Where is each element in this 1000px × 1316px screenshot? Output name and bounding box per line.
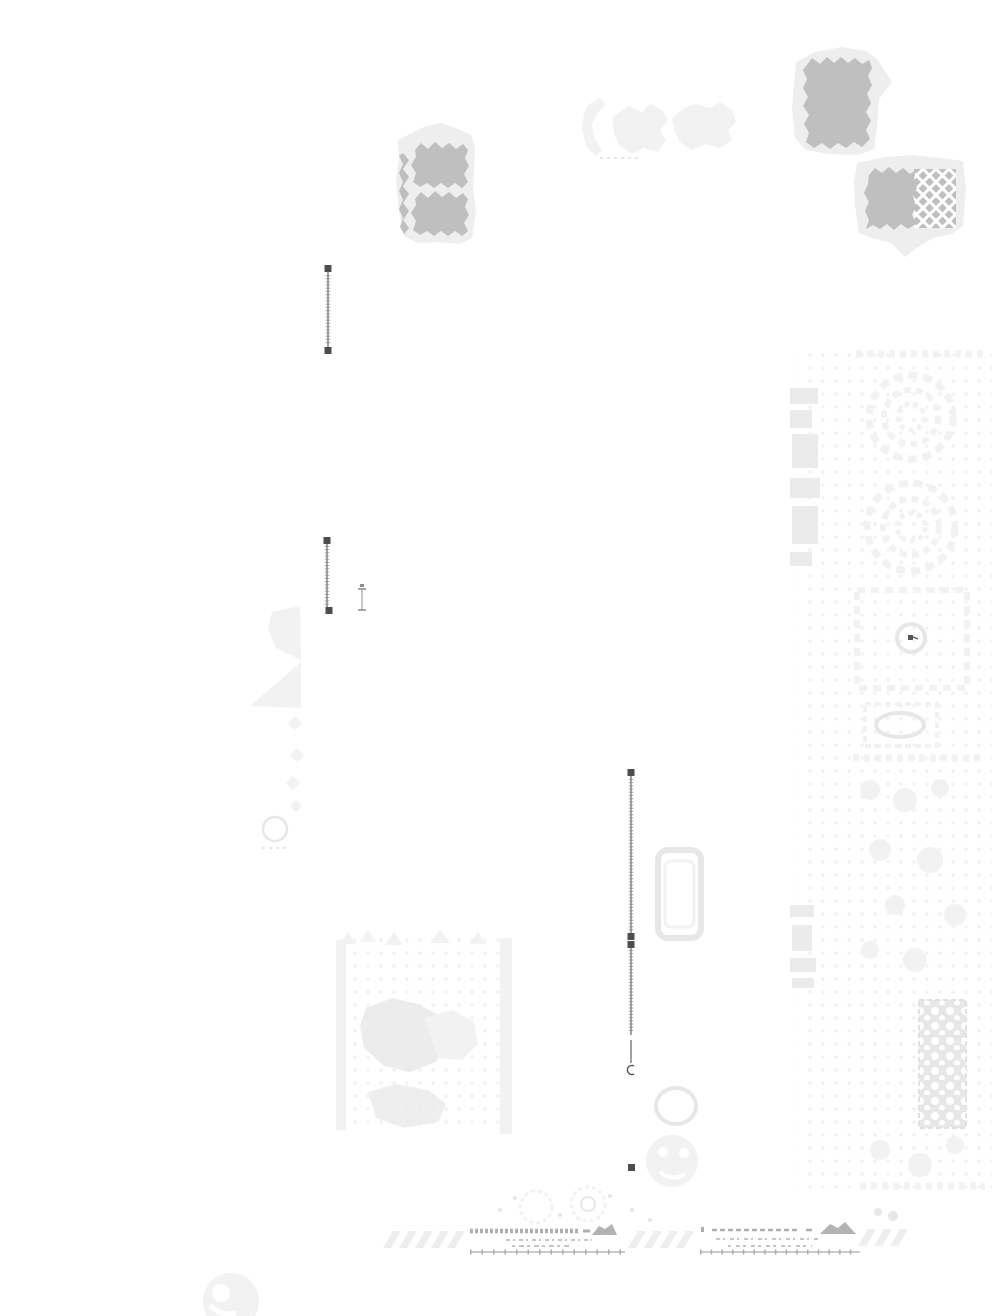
zigzag-band-east (858, 1208, 908, 1246)
zigzag-band-center (628, 1231, 694, 1248)
scale-medallions (498, 1187, 652, 1223)
scale-bar-right (700, 1222, 860, 1252)
corner-tree-clump (203, 1273, 259, 1316)
tree-line-band (250, 606, 304, 848)
circle-symbol (263, 817, 287, 841)
survey-bracket (358, 584, 366, 610)
woodland-block-b (792, 47, 892, 155)
survey-line-4 (627, 941, 634, 1074)
zigzag-band-west (383, 1231, 465, 1248)
survey-line-3 (628, 769, 635, 940)
woodland-block-a (396, 123, 476, 244)
survey-line-2 (324, 537, 333, 614)
scale-mound (820, 1222, 856, 1234)
orchard-block (336, 929, 512, 1134)
textured-bed (919, 1000, 966, 1128)
faded-tree-cluster-top (582, 98, 736, 158)
scanned-plan-page (0, 0, 1000, 1316)
tree-clump-symbols (646, 1088, 698, 1187)
garden-strip (790, 348, 992, 1188)
woodland-block-c (854, 155, 966, 257)
walled-bed-outline (658, 850, 701, 938)
scale-bar-left (470, 1224, 625, 1252)
survey-line-1 (325, 265, 332, 354)
scale-mound (592, 1224, 617, 1235)
survey-point (628, 1164, 635, 1171)
